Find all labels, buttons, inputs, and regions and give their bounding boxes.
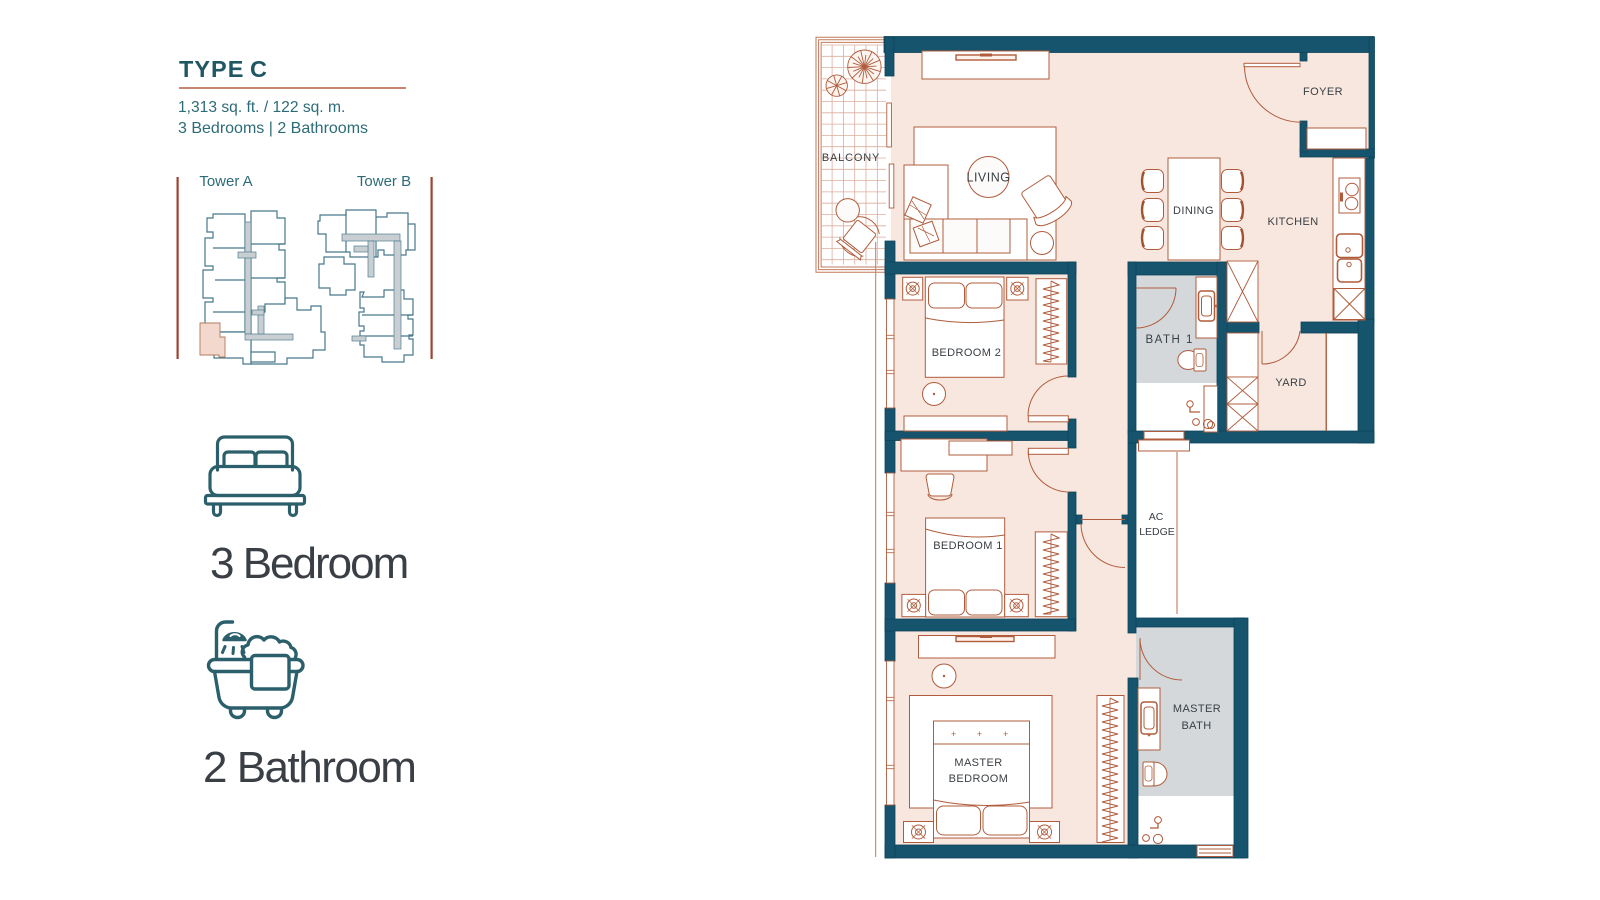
svg-text:LIVING: LIVING — [967, 171, 1011, 185]
svg-text:+: + — [977, 729, 982, 739]
svg-text:+: + — [951, 729, 956, 739]
svg-text:1,313 sq. ft. / 122 sq. m.: 1,313 sq. ft. / 122 sq. m. — [178, 99, 345, 116]
svg-text:BEDROOM: BEDROOM — [949, 773, 1009, 785]
svg-text:Tower A: Tower A — [199, 173, 252, 190]
svg-text:C: C — [250, 56, 267, 82]
svg-text:2 Bathroom: 2 Bathroom — [203, 743, 415, 792]
svg-text:MASTER: MASTER — [954, 757, 1002, 769]
svg-text:BATH: BATH — [1181, 720, 1211, 732]
svg-text:LEDGE: LEDGE — [1139, 526, 1175, 538]
svg-text:DINING: DINING — [1173, 205, 1214, 217]
svg-text:BEDROOM 2: BEDROOM 2 — [932, 347, 1002, 359]
svg-text:YARD: YARD — [1275, 377, 1306, 389]
svg-text:BATH 1: BATH 1 — [1145, 334, 1193, 346]
svg-text:3 Bedrooms | 2 Bathrooms: 3 Bedrooms | 2 Bathrooms — [178, 120, 368, 137]
svg-text:+: + — [1003, 729, 1008, 739]
svg-text:BEDROOM 1: BEDROOM 1 — [933, 540, 1003, 552]
svg-text:3 Bedroom: 3 Bedroom — [210, 539, 407, 588]
svg-text:KITCHEN: KITCHEN — [1267, 216, 1318, 228]
svg-text:TYPE: TYPE — [179, 56, 244, 82]
svg-text:BALCONY: BALCONY — [822, 152, 880, 164]
svg-text:FOYER: FOYER — [1303, 86, 1343, 98]
svg-text:AC: AC — [1149, 511, 1164, 523]
svg-text:MASTER: MASTER — [1173, 703, 1221, 715]
svg-text:Tower B: Tower B — [357, 173, 411, 190]
